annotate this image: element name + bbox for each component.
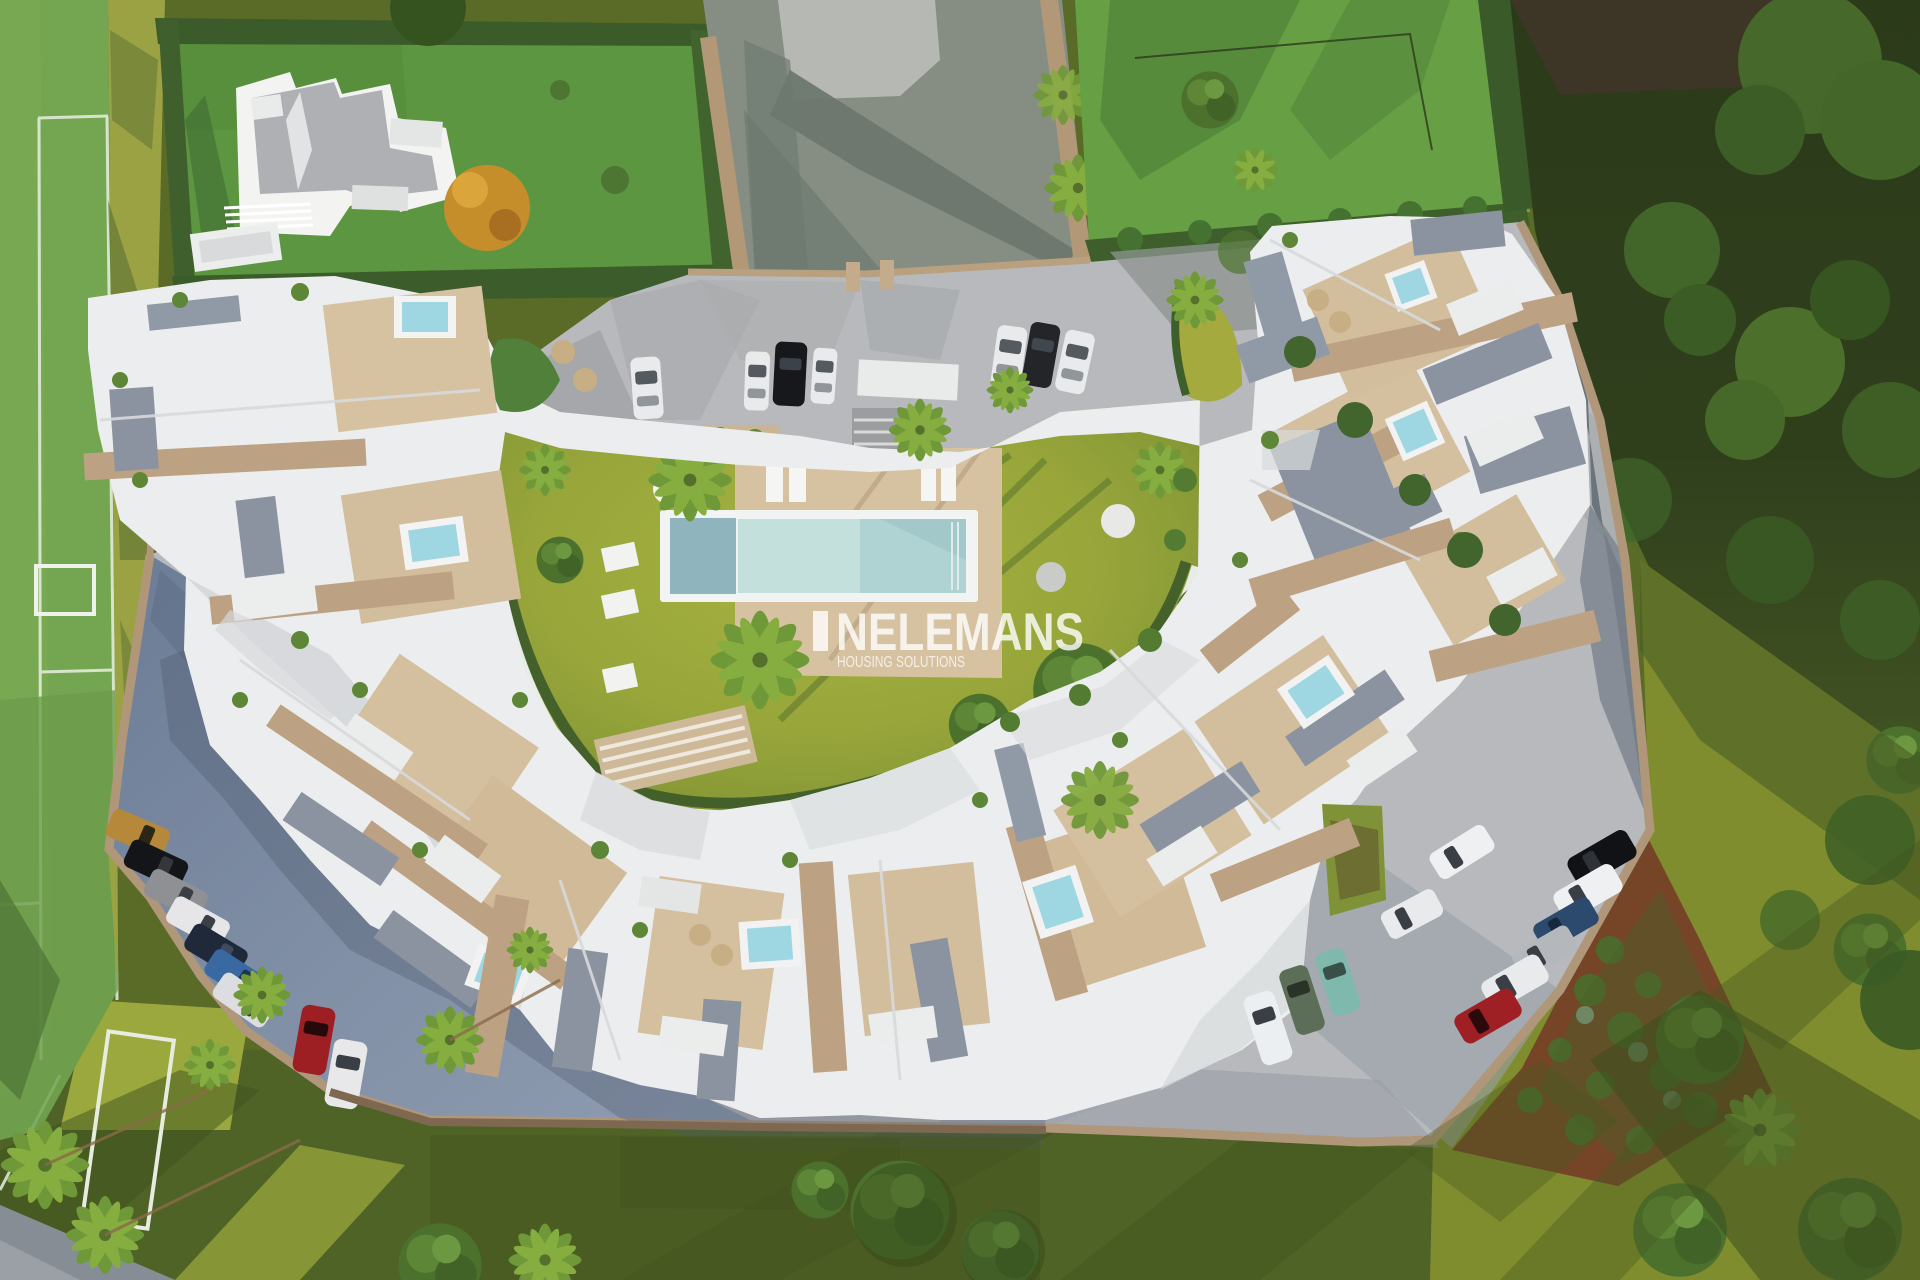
svg-text:HOUSING SOLUTIONS: HOUSING SOLUTIONS — [837, 654, 965, 671]
